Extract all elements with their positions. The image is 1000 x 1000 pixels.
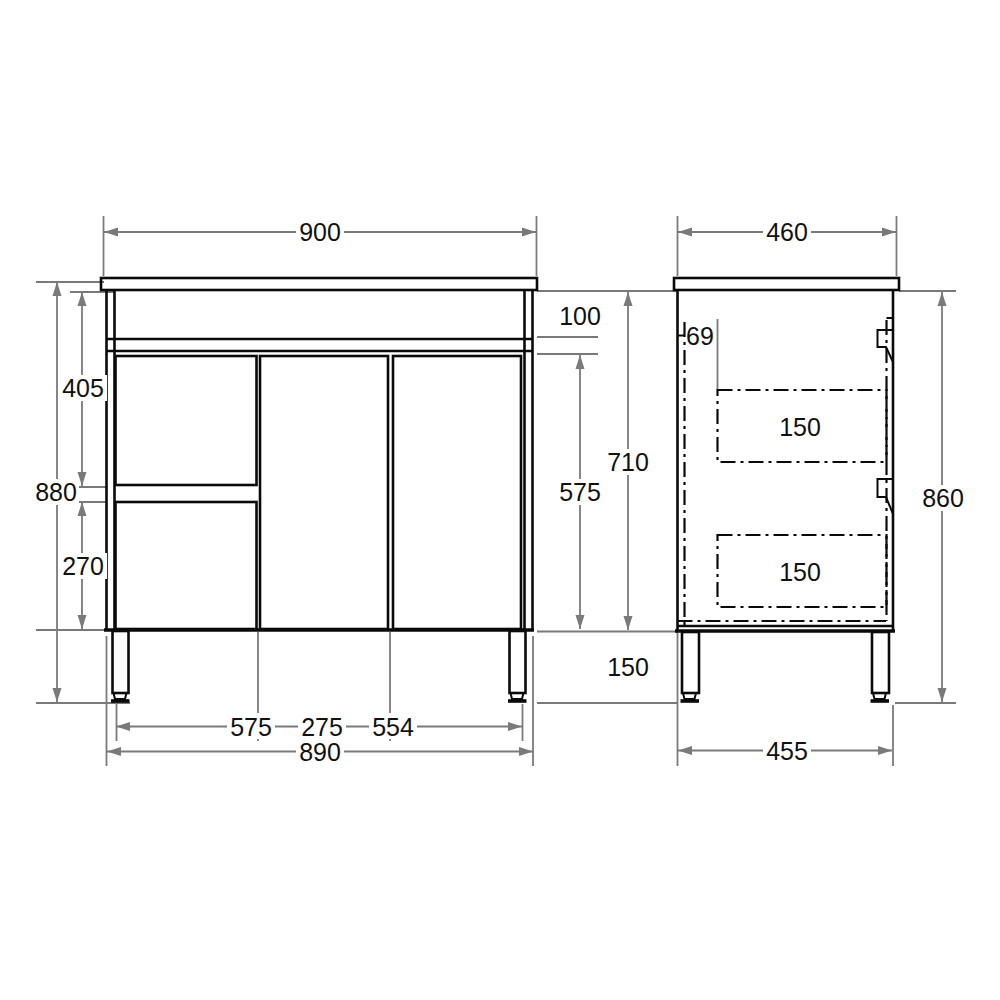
dim-front-span-mid: 275 (301, 713, 343, 741)
label-backgrounds (33, 219, 971, 764)
dim-side-leg-height: 150 (607, 653, 649, 681)
dim-side-base-depth: 455 (766, 737, 808, 765)
front-bottom-drawer (116, 502, 257, 629)
side-countertop (674, 278, 899, 290)
side-handle-bottom (878, 479, 894, 514)
technical-drawing-page: 900 100 575 880 405 270 575 275 554 890 … (0, 0, 1000, 1000)
dim-front-door-height: 575 (559, 478, 601, 506)
dim-front-total-height: 880 (35, 478, 77, 506)
dim-front-width: 900 (299, 218, 341, 246)
dimension-labels: 900 100 575 880 405 270 575 275 554 890 … (35, 218, 964, 766)
dim-side-panel-offset: 69 (686, 322, 714, 350)
front-middle-door (260, 356, 388, 629)
dimension-arrowheads (53, 228, 947, 757)
dim-side-carcass-height: 710 (607, 448, 649, 476)
side-legs (681, 632, 890, 701)
vanity-dimension-diagram: 900 100 575 880 405 270 575 275 554 890 … (0, 0, 1000, 1000)
front-countertop (101, 278, 537, 290)
dim-front-span-left: 575 (230, 713, 272, 741)
side-handle-top (878, 330, 894, 362)
dim-front-span-right: 554 (372, 713, 414, 741)
extension-lines (36, 216, 956, 766)
dimension-lines (57, 232, 942, 752)
dim-front-apron: 100 (559, 302, 601, 330)
dim-front-upper-drawer: 405 (62, 374, 104, 402)
front-top-drawer (116, 356, 257, 485)
dim-side-total-height: 860 (922, 484, 964, 512)
dim-side-depth: 460 (766, 218, 808, 246)
dim-side-drawer1: 150 (779, 413, 821, 441)
front-legs (111, 631, 527, 701)
dim-front-lower-drawer: 270 (62, 552, 104, 580)
front-view (101, 278, 537, 701)
front-right-door (393, 356, 521, 629)
dim-front-base-width: 890 (299, 738, 341, 766)
dim-side-drawer2: 150 (779, 558, 821, 586)
